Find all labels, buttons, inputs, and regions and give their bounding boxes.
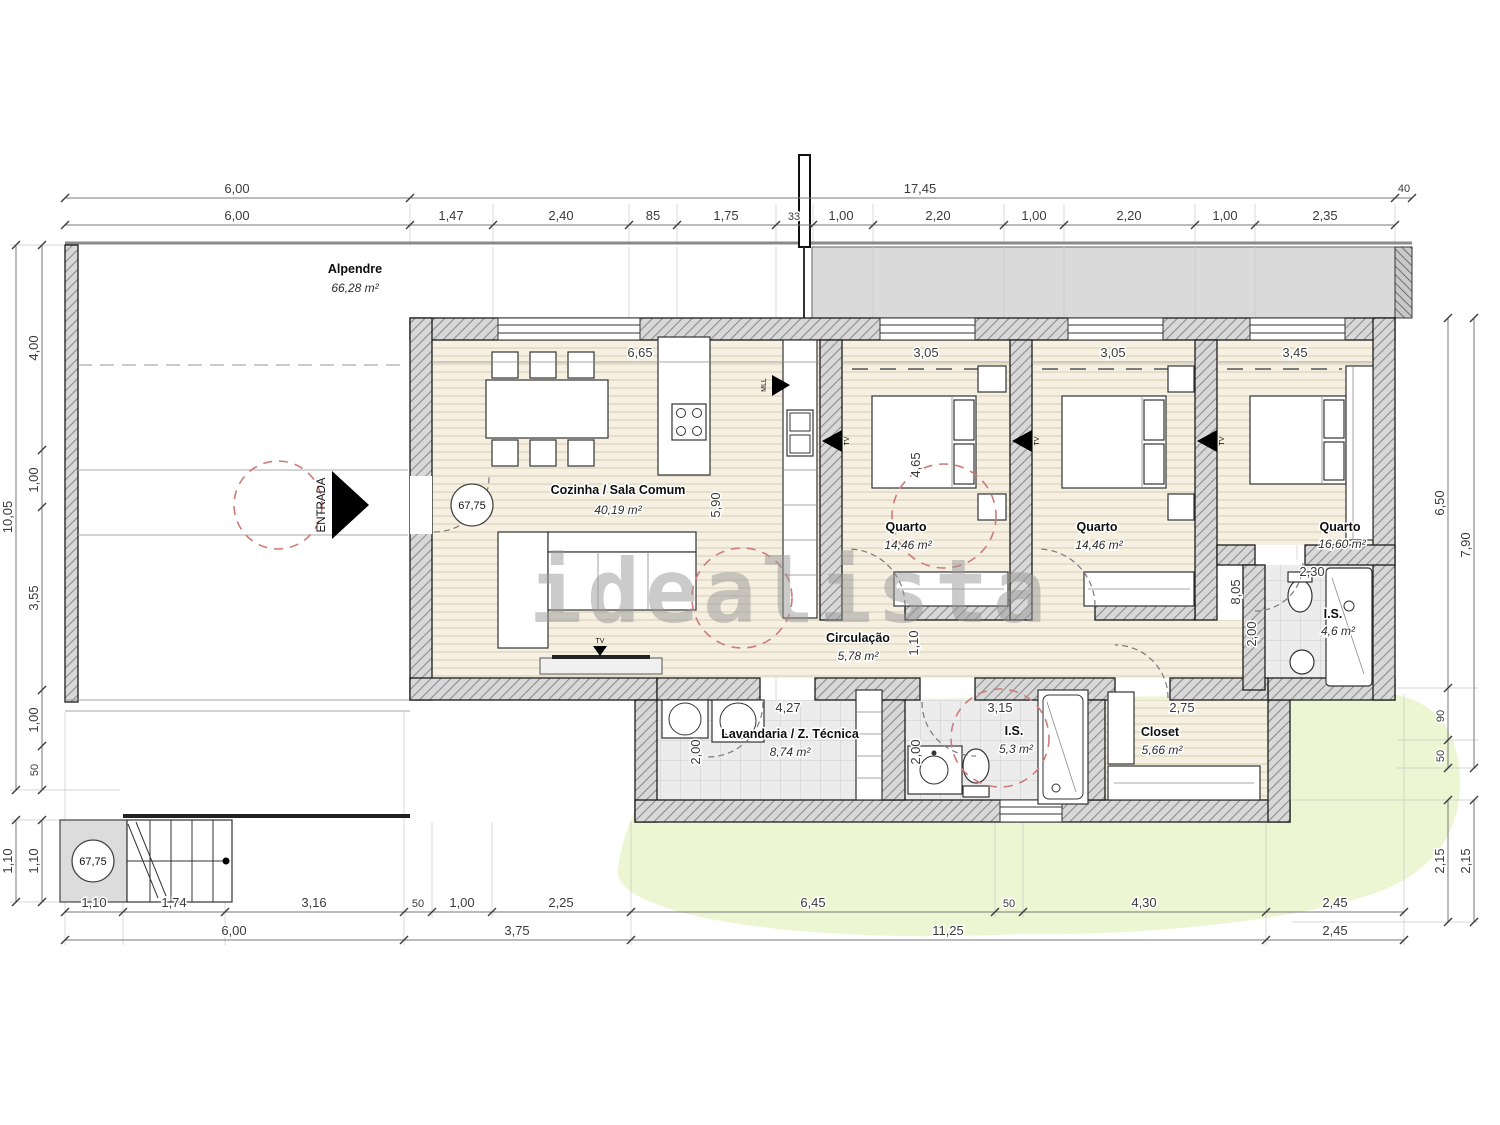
dim: 1,00 <box>26 467 41 492</box>
room-name-cozinha: Cozinha / Sala Comum <box>551 483 686 497</box>
dim: 1,75 <box>713 208 738 223</box>
dim: 6,65 <box>627 345 652 360</box>
dim: 3,15 <box>987 700 1012 715</box>
entrance-door-opening <box>410 476 432 534</box>
exterior-stairs: 67,75 <box>60 816 410 902</box>
entrance-arrow-icon <box>332 471 369 539</box>
dim: 1,10 <box>26 848 41 873</box>
dim: 2,00 <box>908 739 923 764</box>
dim: 10,05 <box>0 501 15 534</box>
dim: 2,00 <box>688 739 703 764</box>
level-value-stairs: 67,75 <box>79 856 107 868</box>
roof-end-wall <box>1395 247 1412 318</box>
dim: 1,10 <box>81 895 106 910</box>
dim: 3,75 <box>504 923 529 938</box>
dim: 8,05 <box>1228 579 1243 604</box>
dim: 3,05 <box>1100 345 1125 360</box>
dim: 2,25 <box>548 895 573 910</box>
cooktop <box>672 404 706 440</box>
room-area-quarto2: 14,46 m² <box>1075 538 1123 552</box>
dim: 1,00 <box>26 707 41 732</box>
room-area-cozinha: 40,19 m² <box>594 503 642 517</box>
dim: 4,00 <box>26 335 41 360</box>
room-area-is1: 4,6 m² <box>1321 624 1356 638</box>
dim: 1,74 <box>161 895 186 910</box>
dim: 2,30 <box>1299 564 1324 579</box>
dim: 4,30 <box>1131 895 1156 910</box>
dim: 2,75 <box>1169 700 1194 715</box>
dim: 3,16 <box>301 895 326 910</box>
dim: 1,00 <box>1212 208 1237 223</box>
dim: 2,15 <box>1432 848 1447 873</box>
dim: 33 <box>788 211 800 223</box>
entrance-label: ENTRADA <box>316 477 328 532</box>
level-value-entrance: 67,75 <box>458 500 486 512</box>
room-area-closet: 5,66 m² <box>1142 743 1184 757</box>
room-area-circulacao: 5,78 m² <box>838 649 880 663</box>
dining-table <box>486 352 608 466</box>
dim: 6,45 <box>800 895 825 910</box>
room-area-quarto3: 16,60 m² <box>1318 537 1366 551</box>
dim: 4,27 <box>775 700 800 715</box>
dim: 6,00 <box>224 181 249 196</box>
tv-label: TV <box>1219 436 1226 445</box>
kitchen-sink <box>787 410 813 456</box>
bathtub-2 <box>1038 690 1088 804</box>
dim: 1,47 <box>438 208 463 223</box>
dim: 2,20 <box>1116 208 1141 223</box>
dim: 50 <box>412 898 424 910</box>
room-area-is2: 5,3 m² <box>999 742 1034 756</box>
dim: 2,00 <box>1244 621 1259 646</box>
room-name-quarto2: Quarto <box>1077 520 1118 534</box>
window-bedroom-1 <box>880 318 975 340</box>
dim: 6,00 <box>224 208 249 223</box>
floor-plan-page: TV <box>0 0 1500 1125</box>
dim: 85 <box>646 208 660 223</box>
laundry-cabinet <box>856 690 882 800</box>
dim: 7,90 <box>1458 532 1473 557</box>
dim: 3,55 <box>26 585 41 610</box>
dim: 2,35 <box>1312 208 1337 223</box>
dim: 1,10 <box>0 848 15 873</box>
dim: 4,65 <box>908 452 923 477</box>
tv-label: TV <box>1034 436 1041 445</box>
dim: 5,90 <box>708 492 723 517</box>
dim: 1,00 <box>1021 208 1046 223</box>
dim: 1,00 <box>828 208 853 223</box>
kitchen-island <box>658 337 710 475</box>
roof-overhang <box>799 155 1412 318</box>
dim: 2,40 <box>548 208 573 223</box>
room-name-is2: I.S. <box>1005 724 1024 738</box>
toilet-1 <box>1288 580 1312 612</box>
toilet-2 <box>963 749 989 783</box>
room-area-alpendre: 66,28 m² <box>331 281 379 295</box>
dim: 6,00 <box>221 923 246 938</box>
dim: 17,45 <box>904 181 937 196</box>
dim: 2,15 <box>1458 848 1473 873</box>
tv-label: TV <box>844 436 851 445</box>
dim: 40 <box>1398 183 1410 195</box>
sink-1 <box>1290 650 1314 674</box>
window-bedroom-3 <box>1250 318 1345 340</box>
dim: 2,45 <box>1322 895 1347 910</box>
room-name-alpendre: Alpendre <box>328 262 382 276</box>
boundary-wall-left <box>65 245 78 702</box>
room-name-lavandaria: Lavandaria / Z. Técnica <box>721 727 860 741</box>
dim: 50 <box>1003 898 1015 910</box>
window-bedroom-2 <box>1068 318 1163 340</box>
room-name-quarto3: Quarto <box>1320 520 1361 534</box>
dim: 2,45 <box>1322 923 1347 938</box>
dim: 6,50 <box>1432 490 1447 515</box>
room-name-quarto1: Quarto <box>886 520 927 534</box>
floor-plan-svg: TV <box>0 0 1500 1125</box>
dim: 3,05 <box>913 345 938 360</box>
window-kitchen <box>498 318 640 340</box>
dim: 3,45 <box>1282 345 1307 360</box>
party-wall-stub <box>799 155 810 247</box>
dim: 1,00 <box>449 895 474 910</box>
dim: 50 <box>1435 750 1447 762</box>
dim: 2,20 <box>925 208 950 223</box>
dim: 11,25 <box>932 923 964 938</box>
dim: 90 <box>1435 710 1447 722</box>
room-name-is1: I.S. <box>1324 607 1343 621</box>
wardrobe-3 <box>1346 366 1373 540</box>
appliance-label: MLL <box>761 378 768 392</box>
room-area-lavandaria: 8,74 m² <box>770 745 812 759</box>
room-name-closet: Closet <box>1141 725 1180 739</box>
idealista-watermark: idealista <box>529 540 1051 643</box>
dim: 50 <box>29 764 41 776</box>
